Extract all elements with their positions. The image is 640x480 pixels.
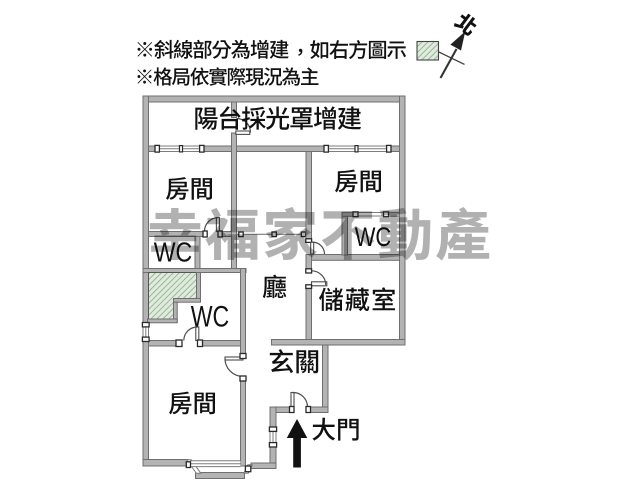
svg-text:WC: WC bbox=[191, 301, 230, 334]
